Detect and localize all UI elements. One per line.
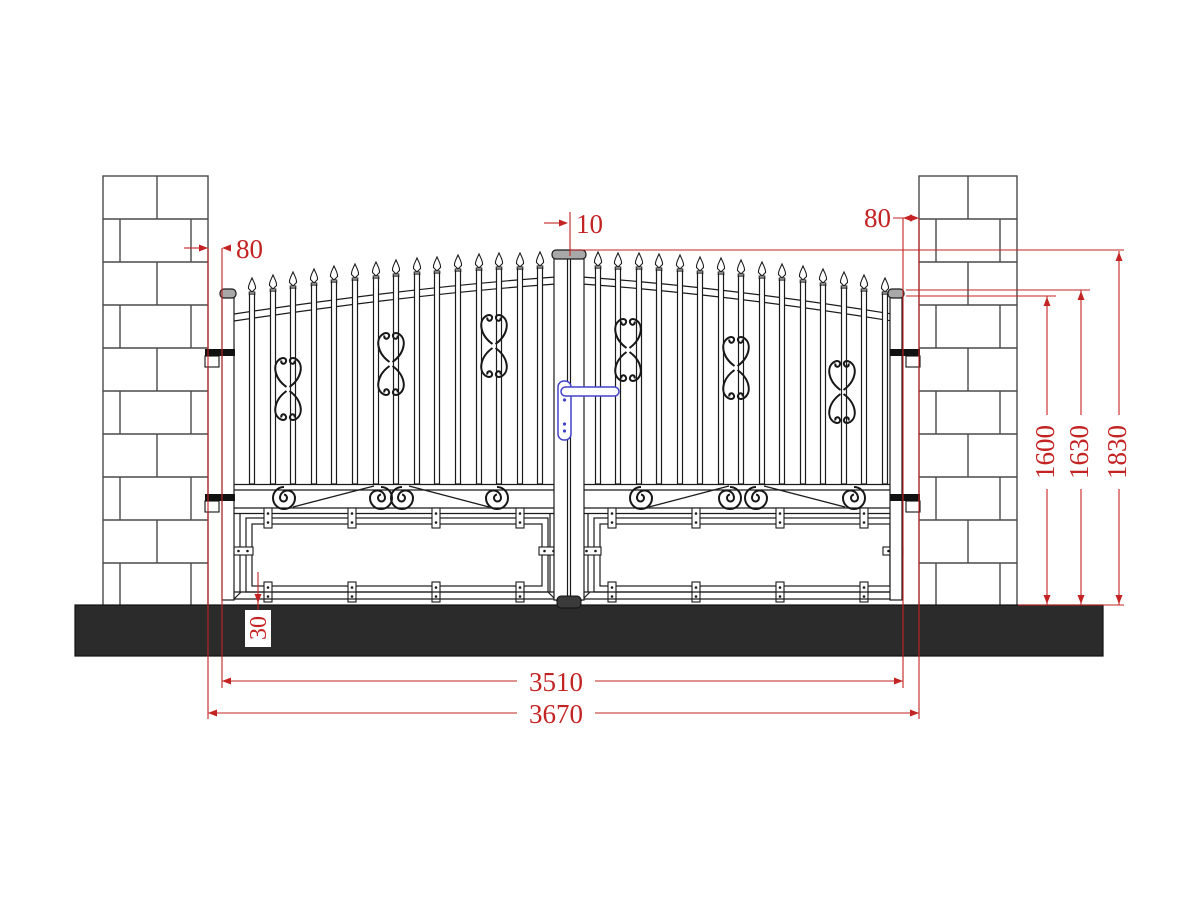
dim-center-gap: 10 <box>544 209 603 239</box>
ground-base <box>75 605 1103 656</box>
left-leaf-bottom-panel <box>233 508 559 602</box>
center-roller-wheel <box>557 596 581 608</box>
dim-post-height-label: 1630 <box>1064 425 1094 479</box>
right-leaf-scroll-band <box>582 485 902 514</box>
lock-handle <box>558 381 619 440</box>
dim-rail-height: 1600 <box>1030 296 1060 605</box>
dim-total-height-label: 1830 <box>1102 425 1132 479</box>
dim-right-gap-label: 80 <box>864 203 891 233</box>
right-leaf-scroll-ornaments <box>615 319 855 423</box>
dim-opening-width-label: 3670 <box>529 699 583 729</box>
dim-left-gap-label: 80 <box>236 234 263 264</box>
left-brick-pillar <box>103 176 208 606</box>
right-brick-pillar <box>919 176 1017 606</box>
dim-right-gap: 80 <box>864 203 919 233</box>
left-leaf-scroll-ornaments <box>275 315 507 420</box>
right-gate-leaf <box>581 252 904 602</box>
dim-opening-width: 3670 <box>208 699 919 729</box>
right-gate-post <box>888 289 904 600</box>
dim-rail-height-label: 1600 <box>1030 425 1060 479</box>
left-gate-leaf <box>220 252 559 602</box>
right-leaf-bottom-panel <box>581 508 903 602</box>
dim-post-height: 1630 <box>1064 290 1094 605</box>
gate-technical-drawing: 10 80 80 1600 <box>0 0 1200 901</box>
dim-gate-width-label: 3510 <box>529 667 583 697</box>
dim-gate-width: 3510 <box>222 667 903 697</box>
dim-center-gap-label: 10 <box>576 209 603 239</box>
dim-ground-clearance-label: 30 <box>246 616 272 640</box>
left-leaf-scroll-band <box>234 485 556 514</box>
right-leaf-bars <box>594 252 888 484</box>
dim-left-gap: 80 <box>184 234 263 264</box>
dim-total-height: 1830 <box>1102 251 1132 605</box>
